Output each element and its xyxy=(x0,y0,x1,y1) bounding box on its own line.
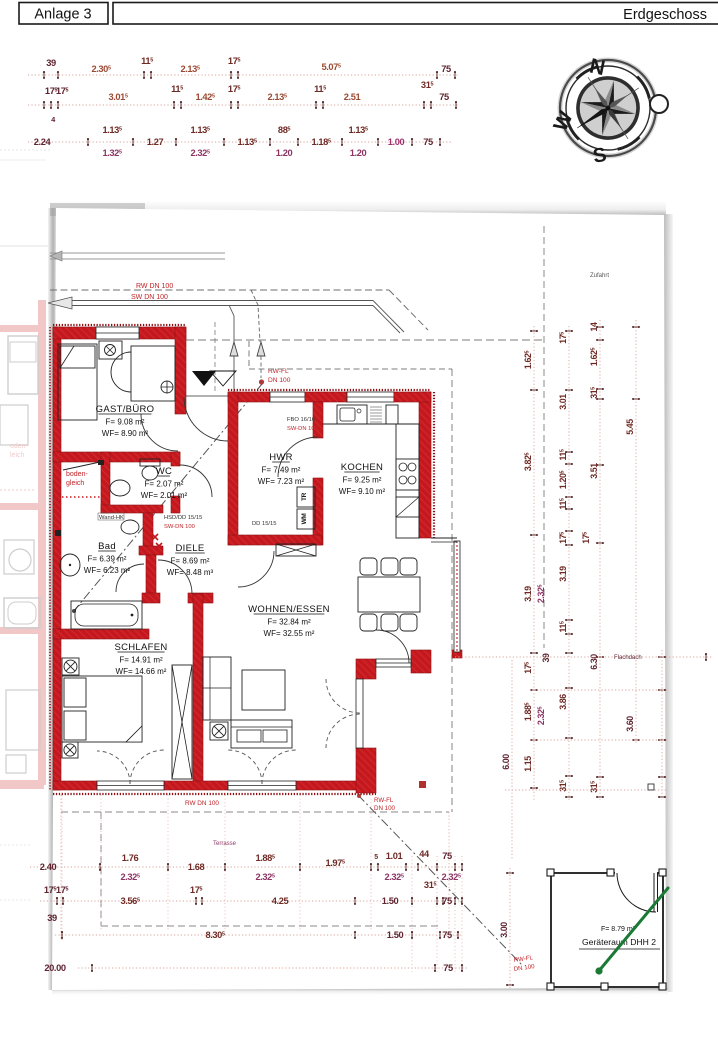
svg-text:75: 75 xyxy=(441,64,451,74)
svg-text:SCHLAFEN: SCHLAFEN xyxy=(114,642,167,653)
svg-text:3.01: 3.01 xyxy=(558,394,568,410)
svg-text:WF= 14.66 m²: WF= 14.66 m² xyxy=(116,667,167,676)
svg-text:75: 75 xyxy=(439,92,449,102)
svg-text:1.50: 1.50 xyxy=(382,896,399,906)
svg-text:5: 5 xyxy=(374,854,378,861)
svg-text:6.30: 6.30 xyxy=(589,654,599,670)
svg-text:SW-DN 100: SW-DN 100 xyxy=(164,524,195,530)
svg-text:75: 75 xyxy=(423,137,433,147)
svg-text:3.51: 3.51 xyxy=(589,463,599,479)
svg-text:F= 9.25 m²: F= 9.25 m² xyxy=(343,476,382,485)
svg-text:2.24: 2.24 xyxy=(34,137,52,147)
svg-text:39: 39 xyxy=(46,58,56,68)
svg-text:Anlage 3: Anlage 3 xyxy=(34,7,91,23)
svg-text:SW-DN 100: SW-DN 100 xyxy=(287,426,318,432)
svg-text:1.01: 1.01 xyxy=(386,851,403,861)
svg-text:WF= 8.90 m²: WF= 8.90 m² xyxy=(102,429,149,438)
svg-text:RW DN 100: RW DN 100 xyxy=(185,800,219,807)
svg-text:3.86: 3.86 xyxy=(558,694,568,710)
svg-text:FBO 16/16: FBO 16/16 xyxy=(287,417,315,423)
svg-text:1.68: 1.68 xyxy=(188,862,205,872)
svg-text:39: 39 xyxy=(47,913,57,923)
svg-text:KOCHEN: KOCHEN xyxy=(341,462,383,473)
svg-text:WF= 32.55 m²: WF= 32.55 m² xyxy=(264,629,315,638)
svg-text:Erdgeschoss: Erdgeschoss xyxy=(623,7,707,23)
svg-text:WM: WM xyxy=(301,514,308,525)
svg-text:F= 7.49 m²: F= 7.49 m² xyxy=(262,466,301,475)
svg-text:WF= 2.01 m²: WF= 2.01 m² xyxy=(141,491,188,500)
svg-text:GAST/BÜRO: GAST/BÜRO xyxy=(96,404,155,415)
svg-text:1.20: 1.20 xyxy=(276,148,293,158)
svg-text:1.27: 1.27 xyxy=(147,137,164,147)
svg-text:DN 100: DN 100 xyxy=(374,805,396,812)
svg-text:WC: WC xyxy=(156,466,172,477)
svg-text:75: 75 xyxy=(442,930,452,940)
svg-text:WF= 9.10 m²: WF= 9.10 m² xyxy=(339,487,386,496)
svg-text:SW DN 100: SW DN 100 xyxy=(131,294,168,301)
svg-text:WF= 7.23 m²: WF= 7.23 m² xyxy=(258,477,305,486)
svg-text:F= 2.07 m²: F= 2.07 m² xyxy=(145,480,184,489)
svg-text:1.50: 1.50 xyxy=(387,930,404,940)
svg-text:F= 6.39 m²: F= 6.39 m² xyxy=(88,555,127,564)
svg-text:DD 15/15: DD 15/15 xyxy=(252,521,277,527)
svg-text:5.45: 5.45 xyxy=(625,419,635,435)
svg-text:RW-FL: RW-FL xyxy=(374,797,394,804)
svg-text:75: 75 xyxy=(442,851,452,861)
svg-text:WF= 8.48 m³: WF= 8.48 m³ xyxy=(167,568,214,577)
svg-text:WOHNEN/ESSEN: WOHNEN/ESSEN xyxy=(248,604,330,615)
svg-text:RW DN 100: RW DN 100 xyxy=(136,283,173,290)
svg-text:F= 9.08 m²: F= 9.08 m² xyxy=(106,418,145,427)
svg-text:75: 75 xyxy=(442,896,452,906)
svg-text:gleich: gleich xyxy=(66,480,84,487)
svg-text:Zufahrt: Zufahrt xyxy=(590,273,609,279)
svg-text:DN 100: DN 100 xyxy=(268,377,291,384)
svg-text:6.00: 6.00 xyxy=(501,754,511,770)
svg-text:44: 44 xyxy=(419,849,430,859)
svg-text:2.51: 2.51 xyxy=(344,92,361,102)
svg-text:1.76: 1.76 xyxy=(122,853,139,863)
svg-text:Flachdach: Flachdach xyxy=(614,655,642,661)
svg-text:75: 75 xyxy=(443,963,453,973)
svg-text:TR: TR xyxy=(301,492,308,501)
svg-text:leich: leich xyxy=(10,452,25,459)
svg-text:F= 8.69 m²: F= 8.69 m² xyxy=(171,557,210,566)
svg-text:3.60: 3.60 xyxy=(625,716,635,732)
svg-text:3.00: 3.00 xyxy=(499,922,509,938)
svg-text:39: 39 xyxy=(541,653,551,662)
svg-text:F= 14.91 m²: F= 14.91 m² xyxy=(119,656,163,665)
svg-text:20.00: 20.00 xyxy=(44,963,65,973)
svg-text:F= 32.84 m²: F= 32.84 m² xyxy=(267,618,311,627)
svg-text:4.25: 4.25 xyxy=(272,896,289,906)
svg-text:3.19: 3.19 xyxy=(558,566,568,582)
svg-text:HWR: HWR xyxy=(269,452,293,463)
svg-text:WF= 6.23 m²: WF= 6.23 m² xyxy=(84,566,131,575)
svg-text:1.15: 1.15 xyxy=(523,756,533,772)
svg-text:3.19: 3.19 xyxy=(523,586,533,602)
svg-text:14: 14 xyxy=(589,322,599,331)
svg-text:oden-: oden- xyxy=(10,443,29,450)
svg-text:1.00: 1.00 xyxy=(388,137,405,147)
svg-text:DIELE: DIELE xyxy=(176,543,205,554)
svg-text:HSD/DD 15/15: HSD/DD 15/15 xyxy=(164,515,202,521)
svg-text:2.40: 2.40 xyxy=(40,862,57,872)
svg-text:Bad: Bad xyxy=(98,541,116,552)
svg-text:boden-: boden- xyxy=(66,471,88,478)
svg-text:1.20: 1.20 xyxy=(350,148,367,158)
